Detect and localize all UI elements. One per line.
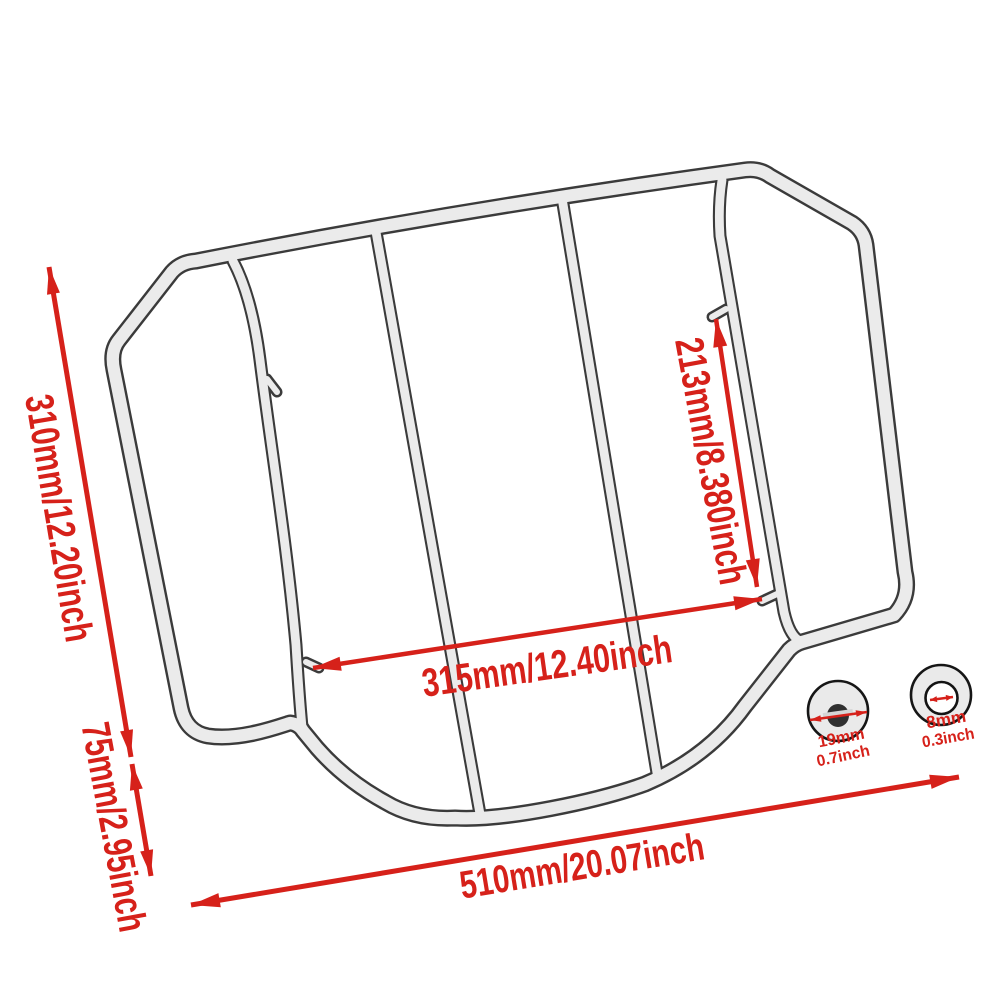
svg-text:310mm/12.20inch: 310mm/12.20inch xyxy=(16,391,101,645)
svg-text:315mm/12.40inch: 315mm/12.40inch xyxy=(419,627,675,706)
